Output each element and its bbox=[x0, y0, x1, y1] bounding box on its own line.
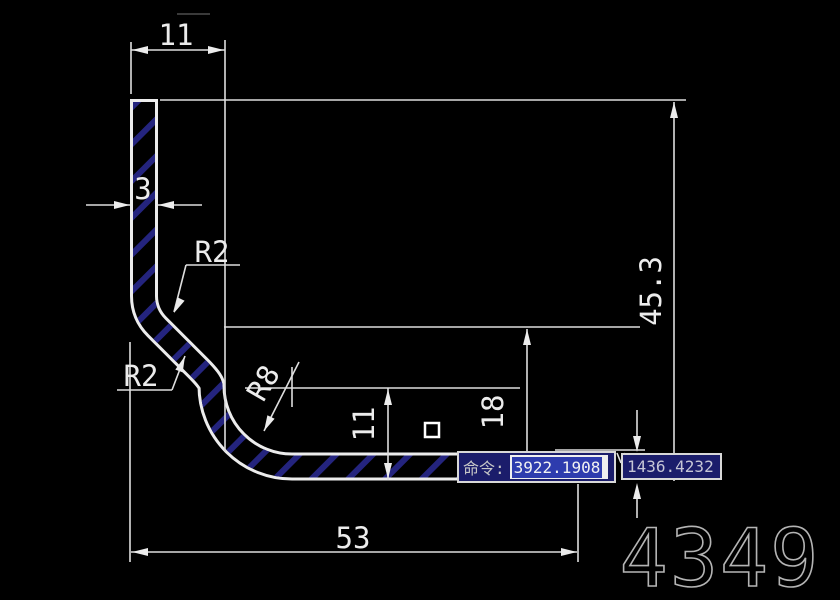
command-selected-text[interactable]: 3922.1908 bbox=[512, 457, 603, 478]
dimension-lines bbox=[86, 40, 686, 562]
dim-text-total-width: 53 bbox=[336, 521, 371, 555]
arrowhead bbox=[633, 483, 641, 499]
command-tooltip[interactable]: 命令: 3922.1908 bbox=[457, 451, 616, 483]
coordinate-value: 1436.4232 bbox=[623, 457, 714, 476]
command-label: 命令: bbox=[459, 455, 505, 479]
dim-text-radius-upper: R2 bbox=[195, 235, 230, 269]
dim-text-mid-height: 18 bbox=[476, 395, 510, 430]
dim-text-leg-height: 11 bbox=[347, 407, 381, 442]
dim-text-total-height: 45.3 bbox=[634, 256, 668, 326]
drawing-canvas[interactable]: 11 3 R2 R2 R8 11 18 45.3 53 4349 bbox=[0, 0, 840, 600]
arrowhead bbox=[132, 548, 148, 556]
arrowhead bbox=[384, 389, 392, 405]
watermark-text: 4349 bbox=[620, 512, 821, 600]
cad-viewport: 11 3 R2 R2 R8 11 18 45.3 53 4349 命令: 392… bbox=[0, 0, 840, 600]
command-input-field[interactable]: 3922.1908 bbox=[510, 455, 609, 479]
arrowhead bbox=[264, 415, 275, 431]
dim-text-thickness: 3 bbox=[134, 172, 151, 206]
arrowhead bbox=[208, 46, 224, 54]
pickbox-cursor bbox=[425, 423, 439, 437]
arrowhead bbox=[523, 329, 531, 345]
arrowhead bbox=[670, 102, 678, 118]
coordinate-tooltip[interactable]: 1436.4232 bbox=[621, 453, 722, 480]
arrowhead bbox=[561, 548, 577, 556]
dim-text-radius-lower: R2 bbox=[124, 359, 159, 393]
arrowhead bbox=[114, 201, 130, 209]
arrowhead bbox=[132, 46, 148, 54]
arrowhead bbox=[158, 201, 174, 209]
dim-text-top-width: 11 bbox=[159, 18, 194, 52]
